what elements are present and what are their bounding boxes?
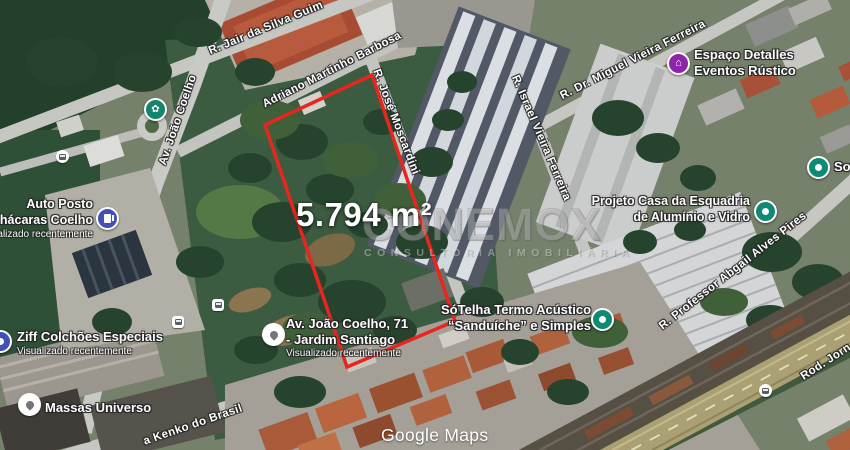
place-label-ziff-colchoes[interactable]: Ziff Colchões Especiais Visualizado rece… xyxy=(17,329,163,358)
place-label-projeto-casa[interactable]: Projeto Casa da Esquadria de Alumínio e … xyxy=(588,194,750,225)
address-pin[interactable] xyxy=(262,323,285,346)
poi-dot-icon xyxy=(599,316,606,323)
place-label-auto-posto[interactable]: Auto Posto Chácaras Coelho Visualizado r… xyxy=(0,197,93,241)
gas-pump-icon xyxy=(104,214,111,223)
parcel-area-label: 5.794 m² xyxy=(296,196,432,234)
map-viewport[interactable]: { "overlay": { "area_label": "5.794 m²",… xyxy=(0,0,850,450)
place-label-partial[interactable]: So xyxy=(834,159,850,175)
place-label-espaco-detalles[interactable]: Espaço Detalles Eventos Rústico xyxy=(694,47,796,78)
place-label-av-joao-coelho-71[interactable]: Av. João Coelho, 71 - Jardim Santiago Vi… xyxy=(286,316,408,360)
watermark-tagline: CONSULTORIA IMOBILIÁRIA xyxy=(364,247,634,259)
pin-drop-icon xyxy=(24,399,35,410)
gas-station-pin[interactable] xyxy=(96,207,119,230)
bus-stop-icon[interactable] xyxy=(212,299,224,311)
restaurant-pin[interactable] xyxy=(18,393,41,416)
poi-dot-icon xyxy=(815,164,822,171)
venue-house-icon: ⌂ xyxy=(675,58,682,69)
bus-stop-icon[interactable] xyxy=(56,150,69,163)
place-label-massas-universo[interactable]: Massas Universo xyxy=(45,400,151,416)
pin-drop-icon xyxy=(268,329,279,340)
google-maps-attribution: Google Maps xyxy=(381,425,488,446)
poi-pin-projeto[interactable] xyxy=(754,200,777,223)
poi-pin-partial[interactable] xyxy=(807,156,830,179)
event-venue-pin[interactable]: ⌂ xyxy=(667,52,690,75)
store-icon xyxy=(0,338,4,345)
poi-pin-sotelha[interactable] xyxy=(591,308,614,331)
bus-stop-icon[interactable] xyxy=(172,316,184,328)
park-pin[interactable]: ✿ xyxy=(144,98,167,121)
bus-stop-icon[interactable] xyxy=(759,384,772,397)
poi-dot-icon xyxy=(762,208,769,215)
place-label-sotelha[interactable]: SóTelha Termo Acústico “Sanduíche” e Sim… xyxy=(441,302,591,333)
flower-icon: ✿ xyxy=(151,104,159,115)
